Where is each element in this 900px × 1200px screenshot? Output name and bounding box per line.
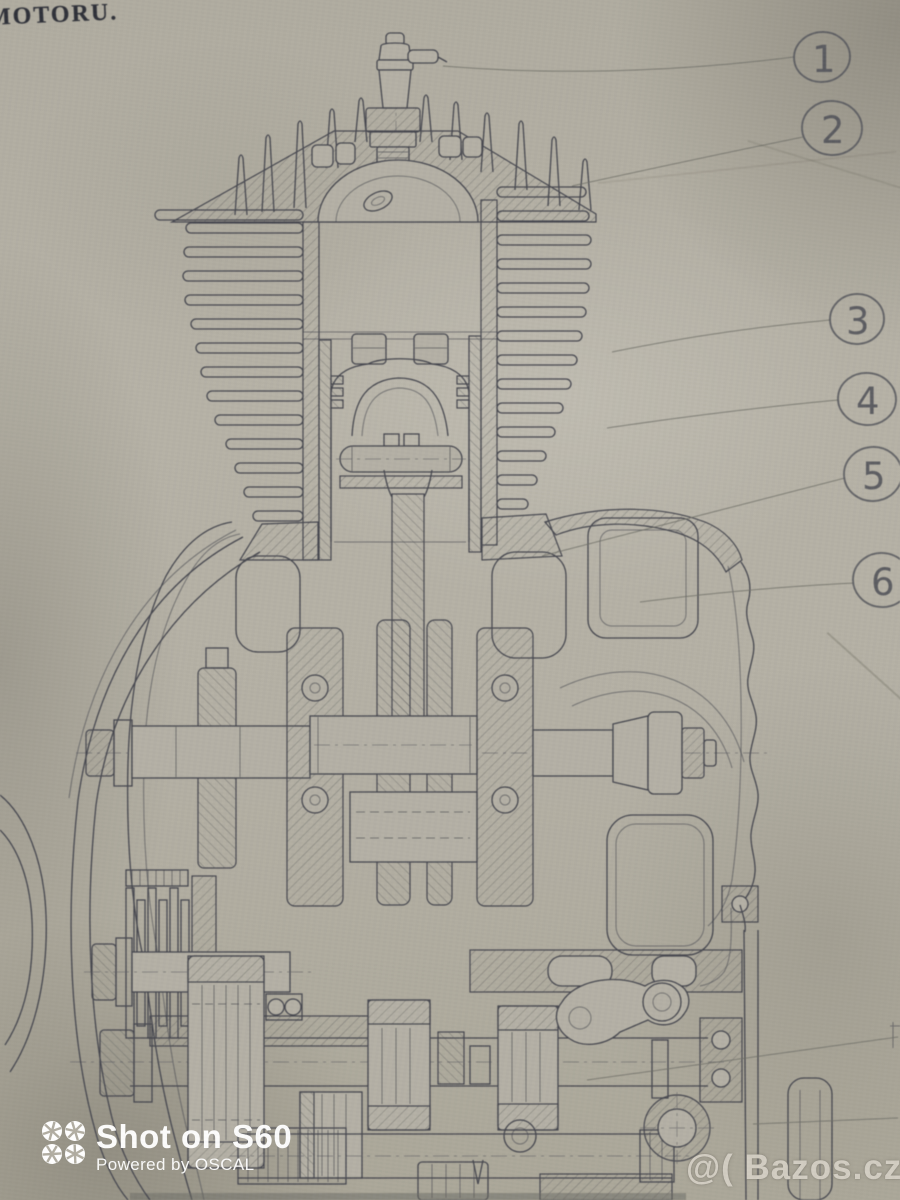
crank-pin: [310, 716, 477, 774]
engine-diagram: 1 2 3 4 5: [0, 0, 900, 1200]
camera-watermark-line2: Powered by OSCAL: [96, 1156, 292, 1173]
camera-watermark-line1: Shot on S60: [96, 1120, 292, 1153]
main-bearing-right: [477, 628, 533, 906]
callouts: 1 2 3 4 5: [792, 29, 900, 610]
svg-text:6: 6: [871, 561, 895, 604]
camera-watermark: Shot on S60 Powered by OSCAL: [40, 1120, 292, 1173]
site-watermark-text: Bazos.cz: [745, 1148, 900, 1187]
gearbox-bearing-right: [700, 1018, 742, 1102]
right-wall-bearing: [722, 886, 758, 922]
site-watermark: @( Bazos.cz: [686, 1148, 900, 1188]
svg-text:3: 3: [846, 300, 870, 343]
photo-content: MOTORU.: [0, 0, 900, 1200]
site-watermark-prefix: @(: [686, 1148, 734, 1187]
kickstart: [556, 979, 714, 1164]
wrist-pin: [336, 446, 466, 472]
callout-4: 4: [836, 371, 898, 428]
cylinder: [155, 187, 591, 560]
callout-6: 6: [850, 550, 900, 610]
svg-text:1: 1: [812, 38, 836, 81]
photo-of-engine-drawing: MOTORU.: [0, 0, 900, 1200]
crank-web-lower: [350, 792, 477, 862]
callout-2: 2: [800, 99, 864, 157]
svg-text:4: 4: [856, 380, 880, 423]
callout-3: 3: [828, 292, 886, 347]
svg-text:5: 5: [862, 455, 886, 498]
aperture-grid-icon: [40, 1120, 88, 1168]
cylinder-fins-right: [497, 187, 591, 509]
callout-5: 5: [842, 445, 900, 503]
magneto-rotor: [607, 815, 713, 955]
gear-4: [498, 1006, 558, 1130]
svg-text:2: 2: [821, 109, 845, 152]
magneto-hub: [613, 712, 716, 794]
gear-2: [300, 1092, 362, 1178]
gear-3: [368, 1000, 430, 1130]
callout-1: 1: [792, 29, 853, 85]
cylinder-fins-left: [155, 210, 303, 521]
